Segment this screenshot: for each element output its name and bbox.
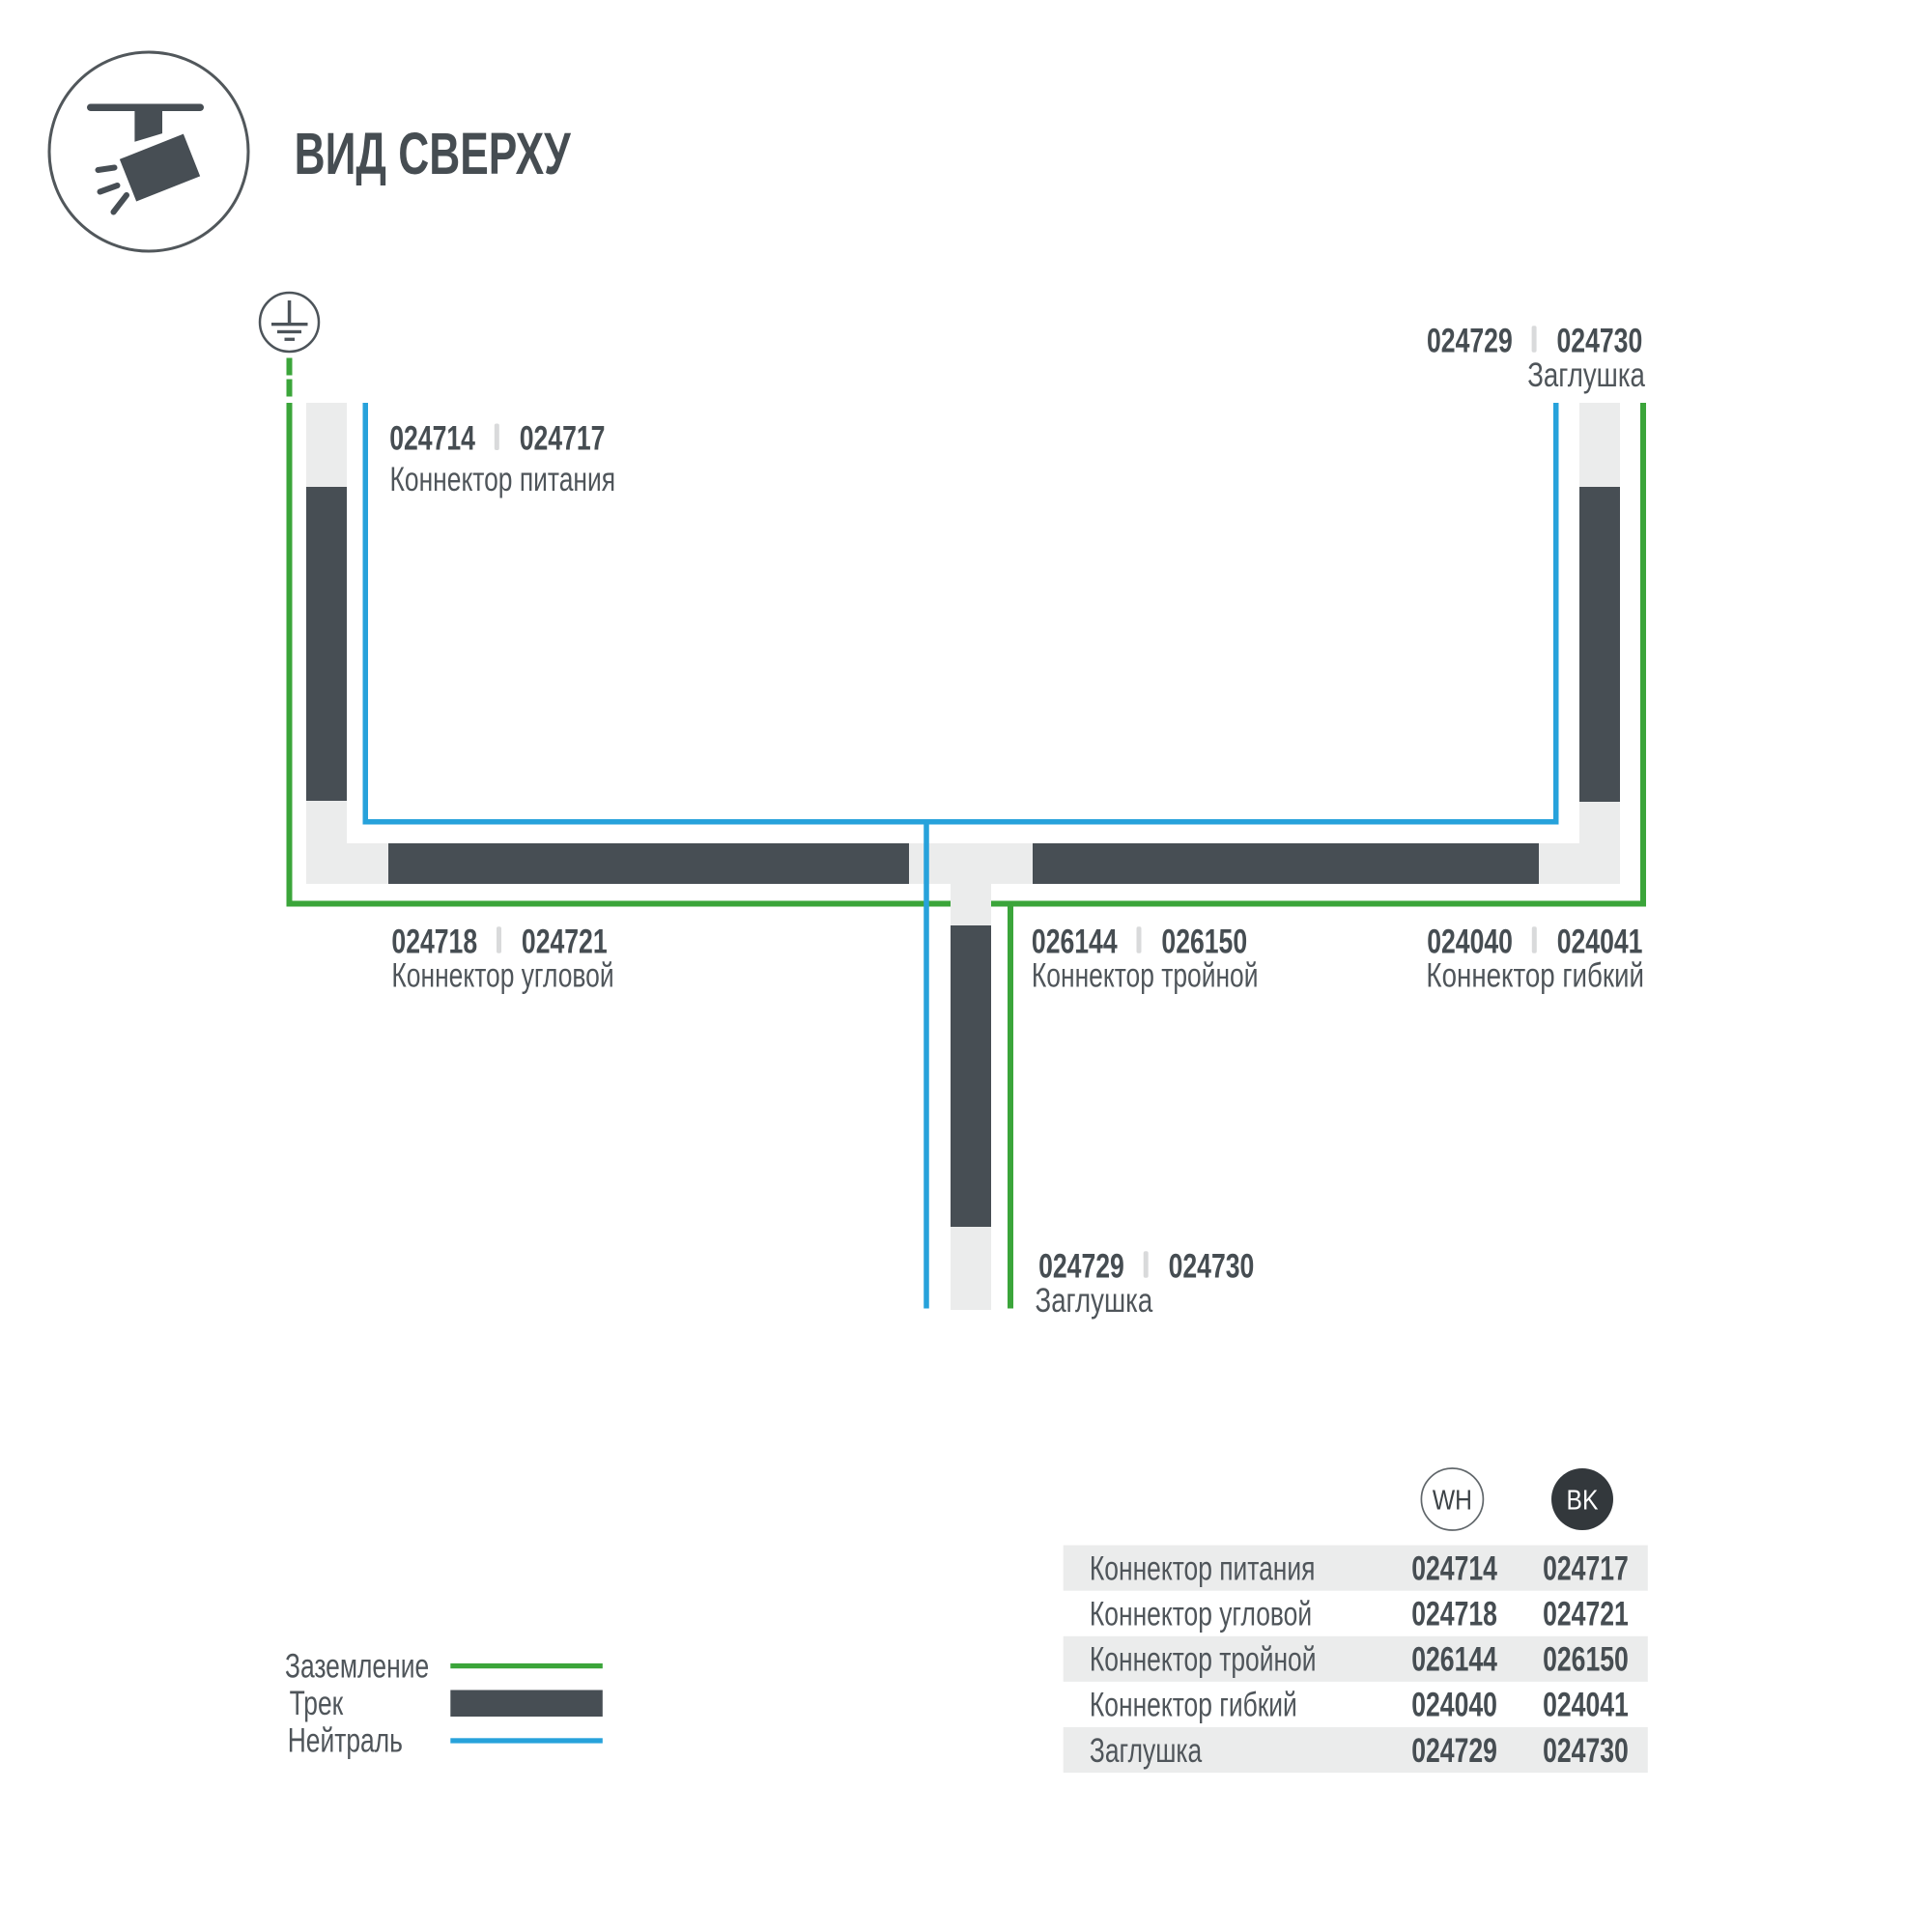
svg-text:Коннектор гибкий: Коннектор гибкий: [1426, 956, 1644, 995]
svg-text:026150: 026150: [1543, 1640, 1629, 1678]
svg-text:024718: 024718: [1411, 1595, 1497, 1633]
svg-text:Коннектор питания: Коннектор питания: [1090, 1549, 1316, 1588]
svg-text:024721: 024721: [522, 923, 608, 960]
svg-text:024040: 024040: [1411, 1686, 1497, 1723]
svg-text:024730: 024730: [1543, 1731, 1629, 1769]
svg-text:Коннектор тройной: Коннектор тройной: [1090, 1640, 1317, 1679]
svg-text:024714: 024714: [1411, 1549, 1497, 1587]
svg-text:024729: 024729: [1038, 1247, 1124, 1285]
svg-text:Заземление: Заземление: [285, 1647, 429, 1686]
svg-text:Коннектор угловой: Коннектор угловой: [391, 956, 613, 995]
svg-text:WH: WH: [1433, 1484, 1472, 1515]
svg-text:024041: 024041: [1557, 923, 1643, 960]
svg-text:024714: 024714: [389, 419, 475, 457]
svg-text:024730: 024730: [1557, 322, 1643, 359]
svg-text:Заглушка: Заглушка: [1036, 1281, 1153, 1320]
svg-text:024041: 024041: [1543, 1686, 1629, 1723]
svg-text:026144: 026144: [1411, 1640, 1497, 1678]
svg-text:024730: 024730: [1169, 1247, 1255, 1285]
svg-text:024717: 024717: [520, 419, 606, 457]
svg-text:024040: 024040: [1427, 923, 1513, 960]
svg-text:Коннектор тройной: Коннектор тройной: [1032, 956, 1259, 995]
svg-text:024729: 024729: [1411, 1731, 1497, 1769]
svg-text:Заглушка: Заглушка: [1527, 355, 1645, 394]
svg-text:026144: 026144: [1032, 923, 1118, 960]
svg-text:Коннектор угловой: Коннектор угловой: [1090, 1595, 1312, 1634]
svg-text:024729: 024729: [1427, 322, 1513, 359]
svg-text:ВИД СВЕРХУ: ВИД СВЕРХУ: [295, 122, 572, 187]
svg-text:024717: 024717: [1543, 1549, 1629, 1587]
svg-text:Трек: Трек: [290, 1684, 344, 1722]
svg-text:Коннектор питания: Коннектор питания: [390, 460, 616, 498]
svg-text:024721: 024721: [1543, 1595, 1629, 1633]
svg-text:Заглушка: Заглушка: [1090, 1731, 1203, 1770]
svg-text:024718: 024718: [391, 923, 477, 960]
svg-text:BK: BK: [1567, 1484, 1599, 1515]
svg-text:Коннектор гибкий: Коннектор гибкий: [1090, 1686, 1297, 1724]
svg-text:026150: 026150: [1161, 923, 1247, 960]
svg-text:Нейтраль: Нейтраль: [288, 1721, 403, 1760]
